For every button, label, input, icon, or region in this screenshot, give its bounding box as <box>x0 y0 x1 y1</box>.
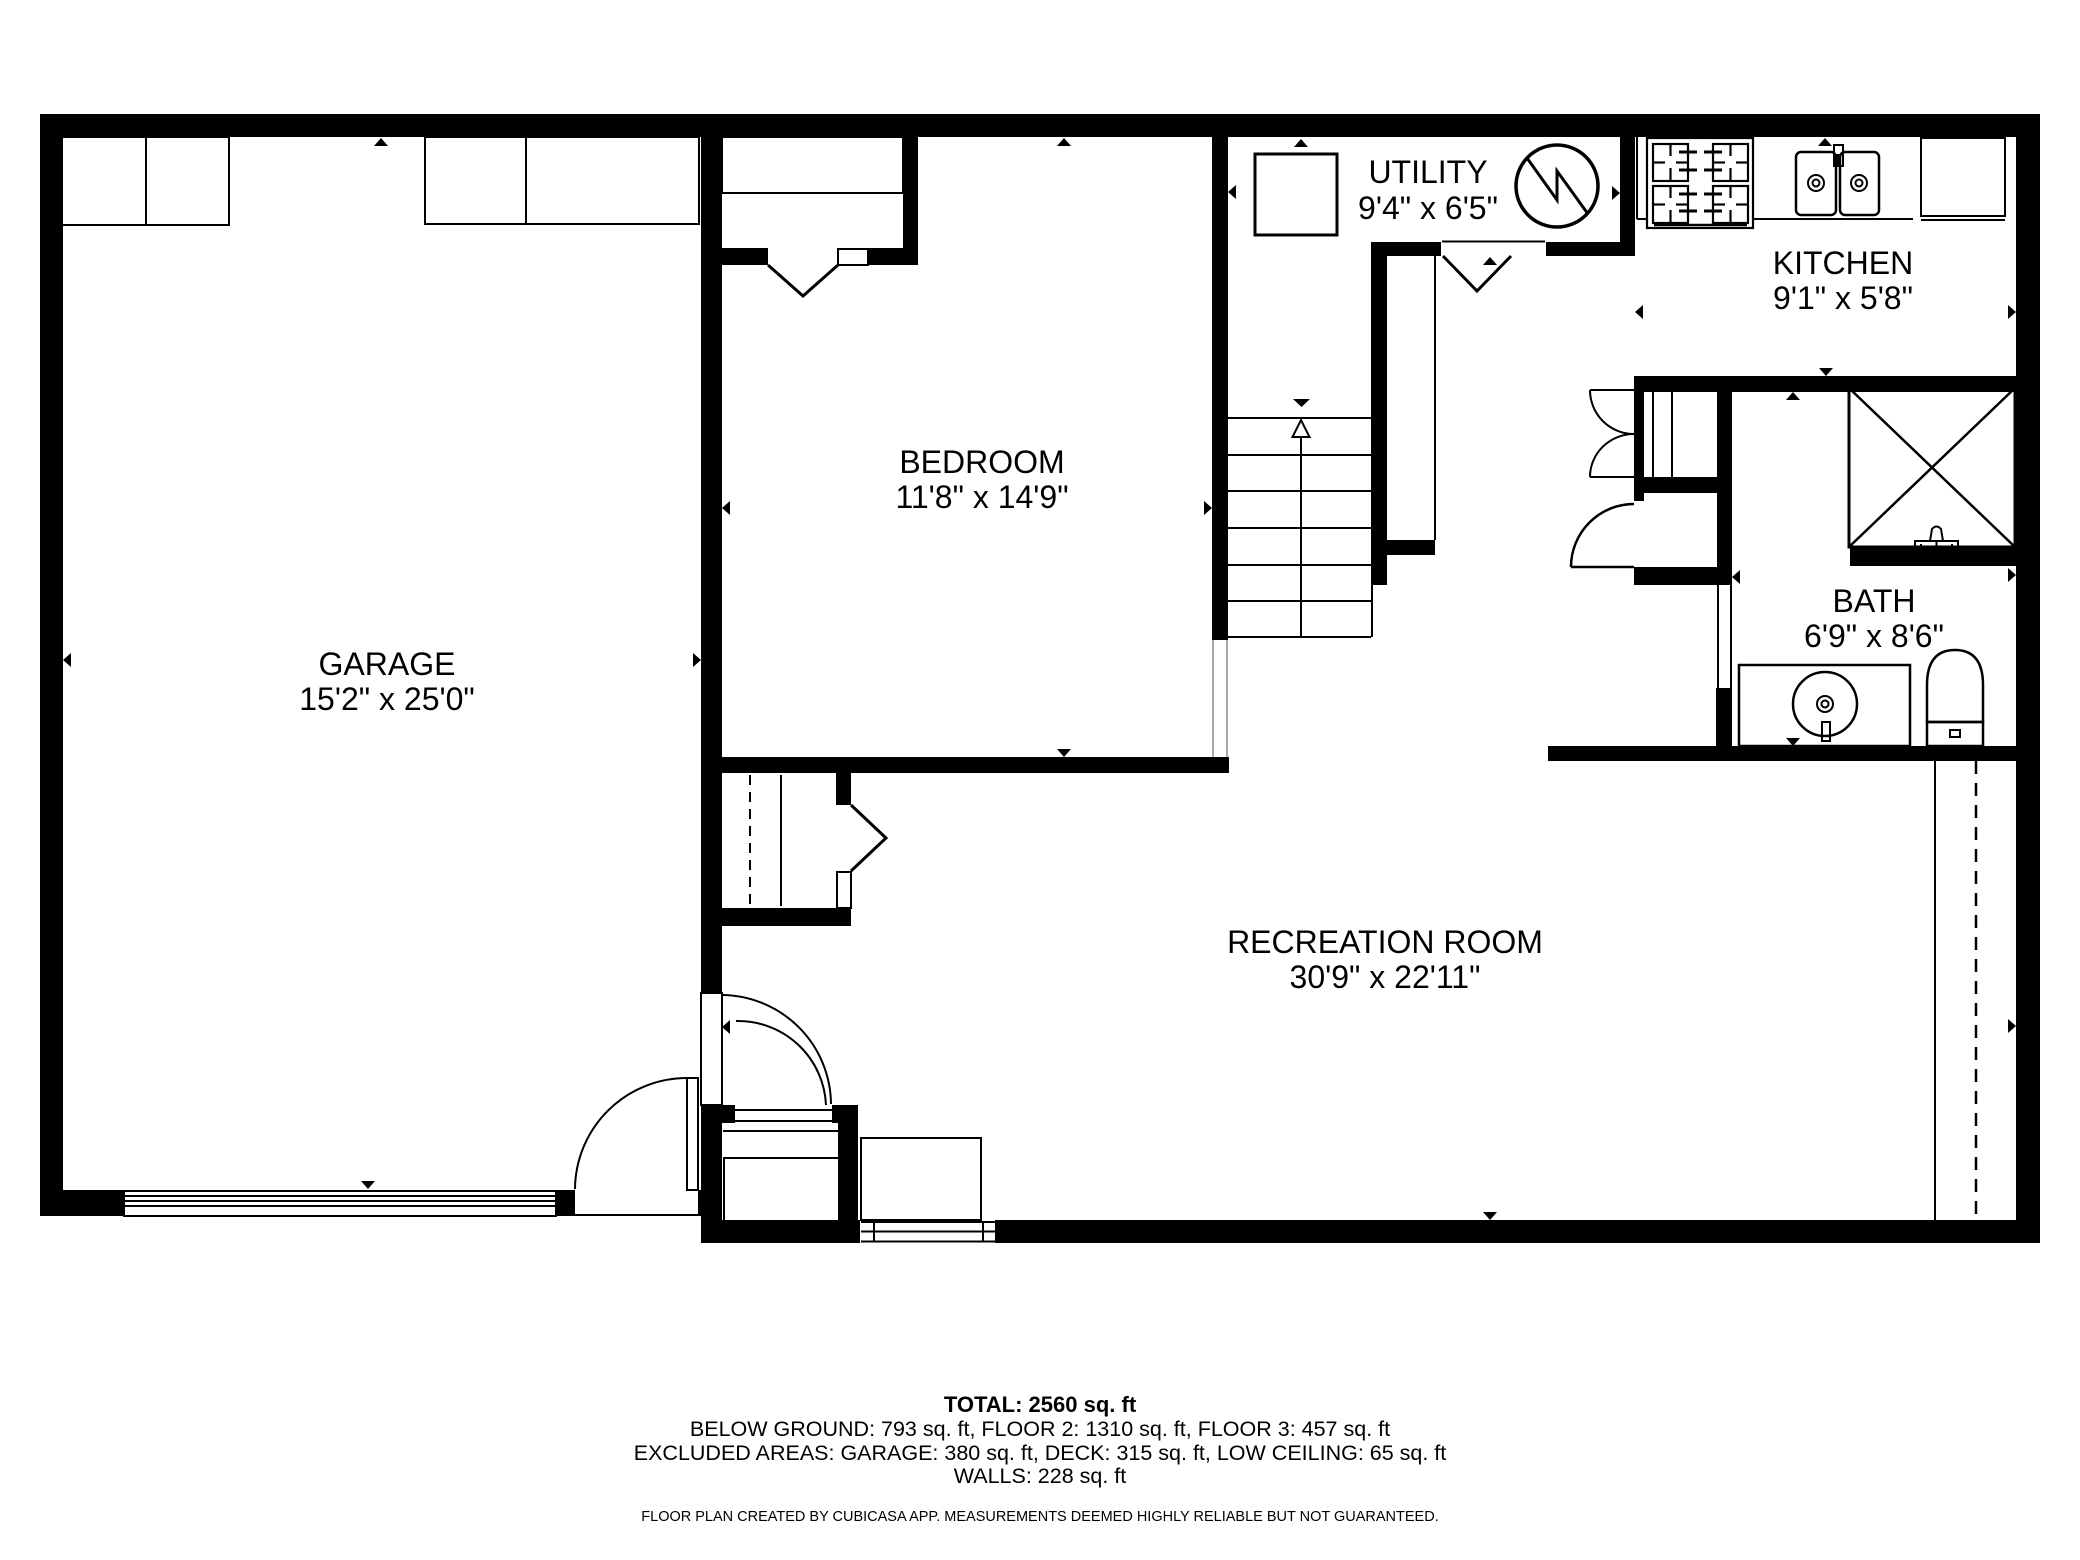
svg-text:BATH: BATH <box>1833 583 1916 619</box>
svg-text:11'8" x 14'9": 11'8" x 14'9" <box>895 479 1068 515</box>
svg-text:BEDROOM: BEDROOM <box>899 444 1064 480</box>
svg-text:GARAGE: GARAGE <box>319 646 456 682</box>
svg-text:UTILITY: UTILITY <box>1368 154 1487 190</box>
svg-text:9'1" x 5'8": 9'1" x 5'8" <box>1773 280 1913 316</box>
svg-text:WALLS: 228 sq. ft: WALLS: 228 sq. ft <box>954 1464 1127 1488</box>
svg-text:6'9" x 8'6": 6'9" x 8'6" <box>1804 618 1944 654</box>
svg-text:9'4" x 6'5": 9'4" x 6'5" <box>1358 190 1498 226</box>
svg-text:RECREATION ROOM: RECREATION ROOM <box>1227 924 1543 960</box>
svg-text:30'9" x 22'11": 30'9" x 22'11" <box>1290 959 1481 995</box>
svg-text:15'2" x 25'0": 15'2" x 25'0" <box>299 681 475 717</box>
svg-text:BELOW GROUND: 793 sq. ft, FLOO: BELOW GROUND: 793 sq. ft, FLOOR 2: 1310 … <box>690 1417 1390 1441</box>
svg-text:FLOOR PLAN CREATED BY CUBICASA: FLOOR PLAN CREATED BY CUBICASA APP. MEAS… <box>641 1509 1438 1525</box>
svg-text:EXCLUDED AREAS: GARAGE: 380 sq: EXCLUDED AREAS: GARAGE: 380 sq. ft, DECK… <box>634 1441 1447 1465</box>
svg-text:TOTAL: 2560 sq. ft: TOTAL: 2560 sq. ft <box>944 1392 1137 1417</box>
svg-text:KITCHEN: KITCHEN <box>1773 245 1913 281</box>
